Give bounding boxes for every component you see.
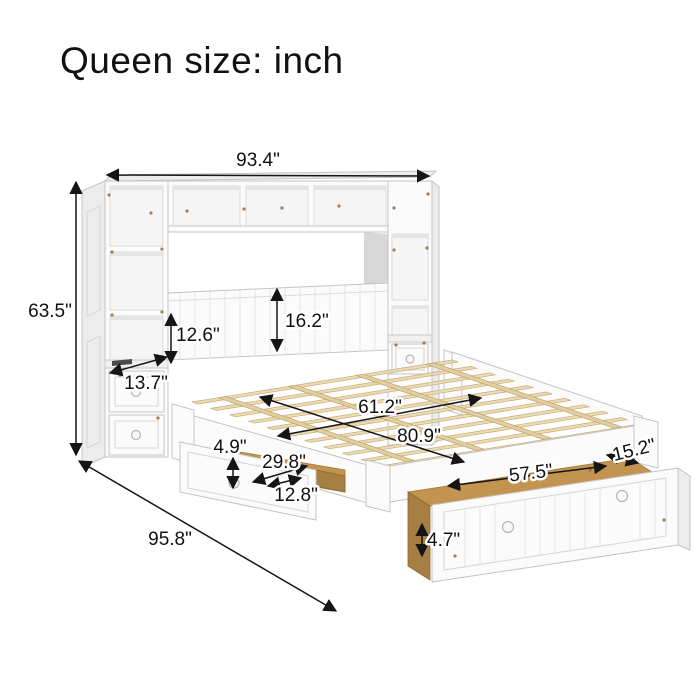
- foot-post-left: [366, 460, 390, 512]
- svg-text:80.9": 80.9": [397, 426, 441, 447]
- svg-text:12.8": 12.8": [274, 485, 318, 506]
- bed-diagram-canvas: 93.4" 63.5" 12.6" 16.2" 13.7" 61.2": [0, 0, 700, 700]
- wall-unit: [82, 171, 439, 467]
- page-title: Queen size: inch: [60, 40, 344, 82]
- drawer-knob: [132, 431, 141, 440]
- svg-text:61.2": 61.2": [358, 397, 402, 418]
- product-dimension-diagram: Queen size: inch: [0, 0, 700, 700]
- drawer-knob: [617, 491, 628, 502]
- svg-text:63.5": 63.5": [28, 301, 72, 322]
- svg-text:29.8": 29.8": [262, 452, 306, 473]
- drawer-knob: [229, 478, 239, 488]
- right-tower-inner-side: [364, 232, 388, 290]
- svg-text:12.6": 12.6": [176, 325, 220, 346]
- svg-text:95.8": 95.8": [148, 529, 192, 550]
- left-tower: [105, 181, 168, 457]
- left-tower-side-panel: [82, 181, 105, 467]
- drawer-knob: [406, 355, 414, 363]
- dimension-unit-height: 63.5": [28, 182, 76, 455]
- drawer-knob: [503, 522, 514, 533]
- headboard-panel: [168, 283, 388, 360]
- svg-text:4.7": 4.7": [427, 530, 460, 551]
- trundle-right-end: [678, 468, 690, 550]
- svg-text:93.4": 93.4": [236, 150, 280, 171]
- svg-text:4.9": 4.9": [213, 437, 246, 458]
- svg-text:16.2": 16.2": [285, 311, 329, 332]
- svg-text:13.7": 13.7": [124, 373, 168, 394]
